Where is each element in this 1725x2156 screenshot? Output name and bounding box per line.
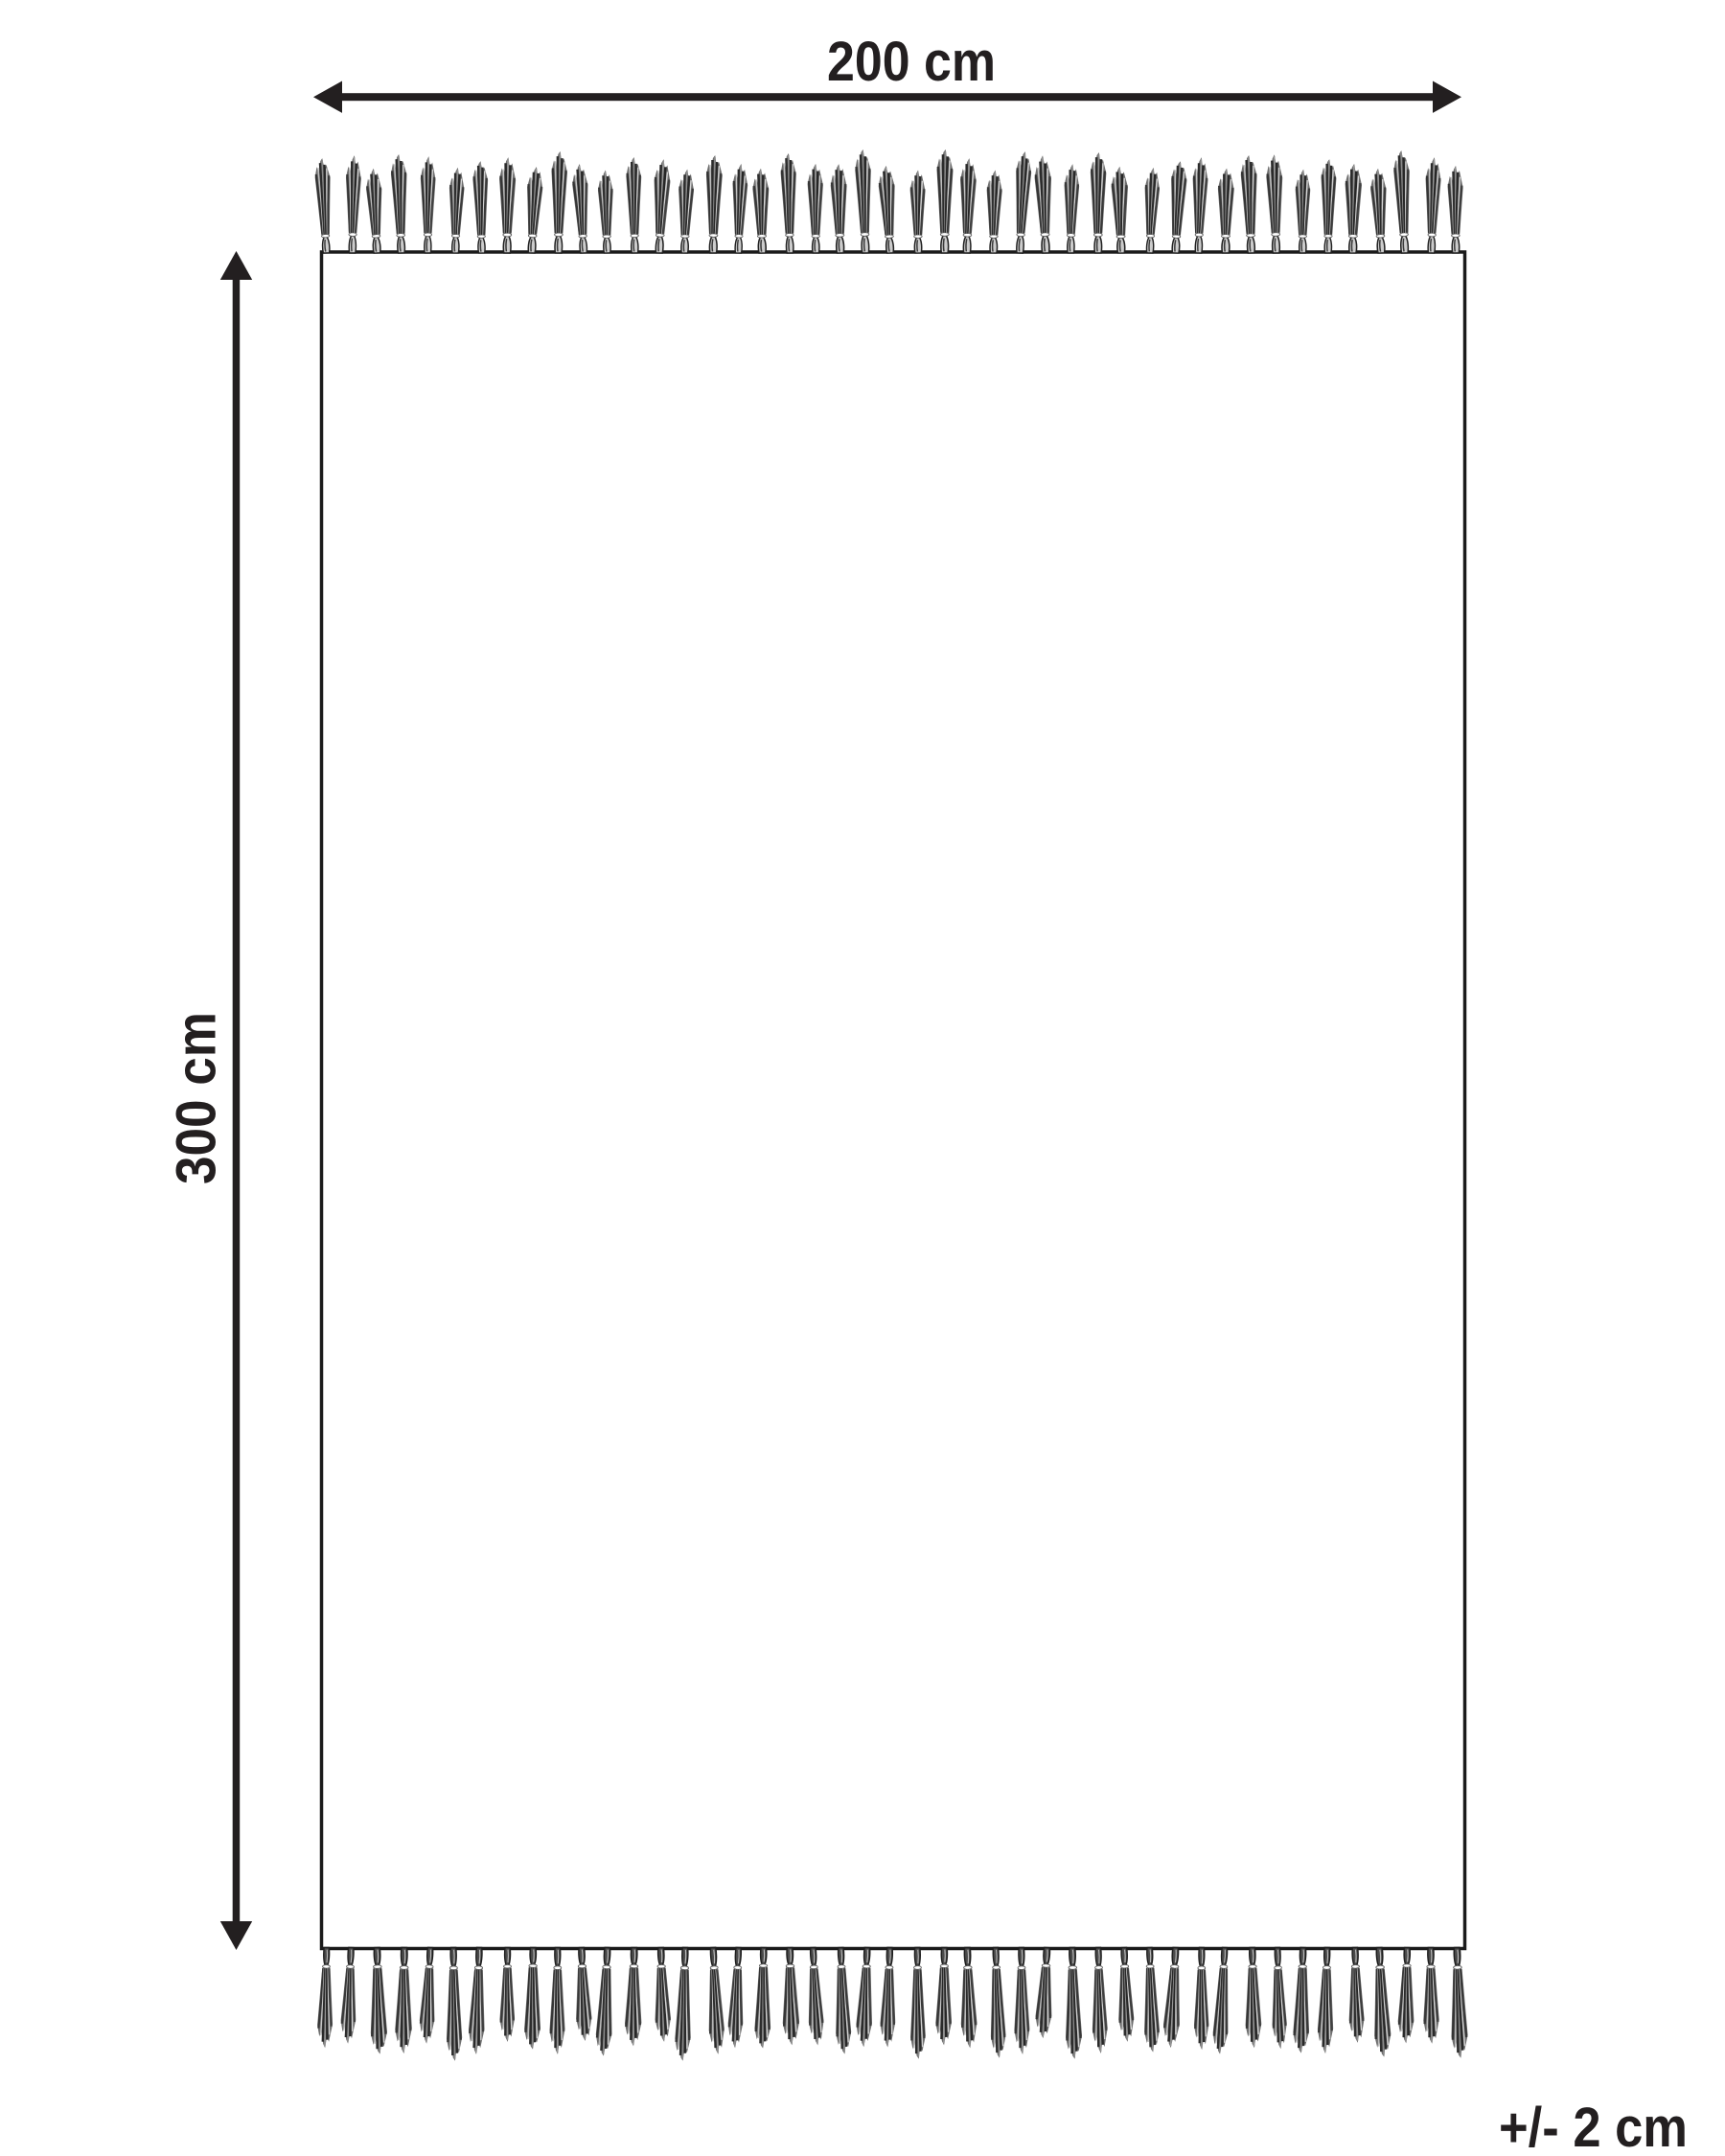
svg-text:+/- 2 cm: +/- 2 cm bbox=[1499, 2097, 1688, 2156]
svg-text:200 cm: 200 cm bbox=[827, 31, 996, 93]
svg-text:300 cm: 300 cm bbox=[166, 1012, 228, 1184]
